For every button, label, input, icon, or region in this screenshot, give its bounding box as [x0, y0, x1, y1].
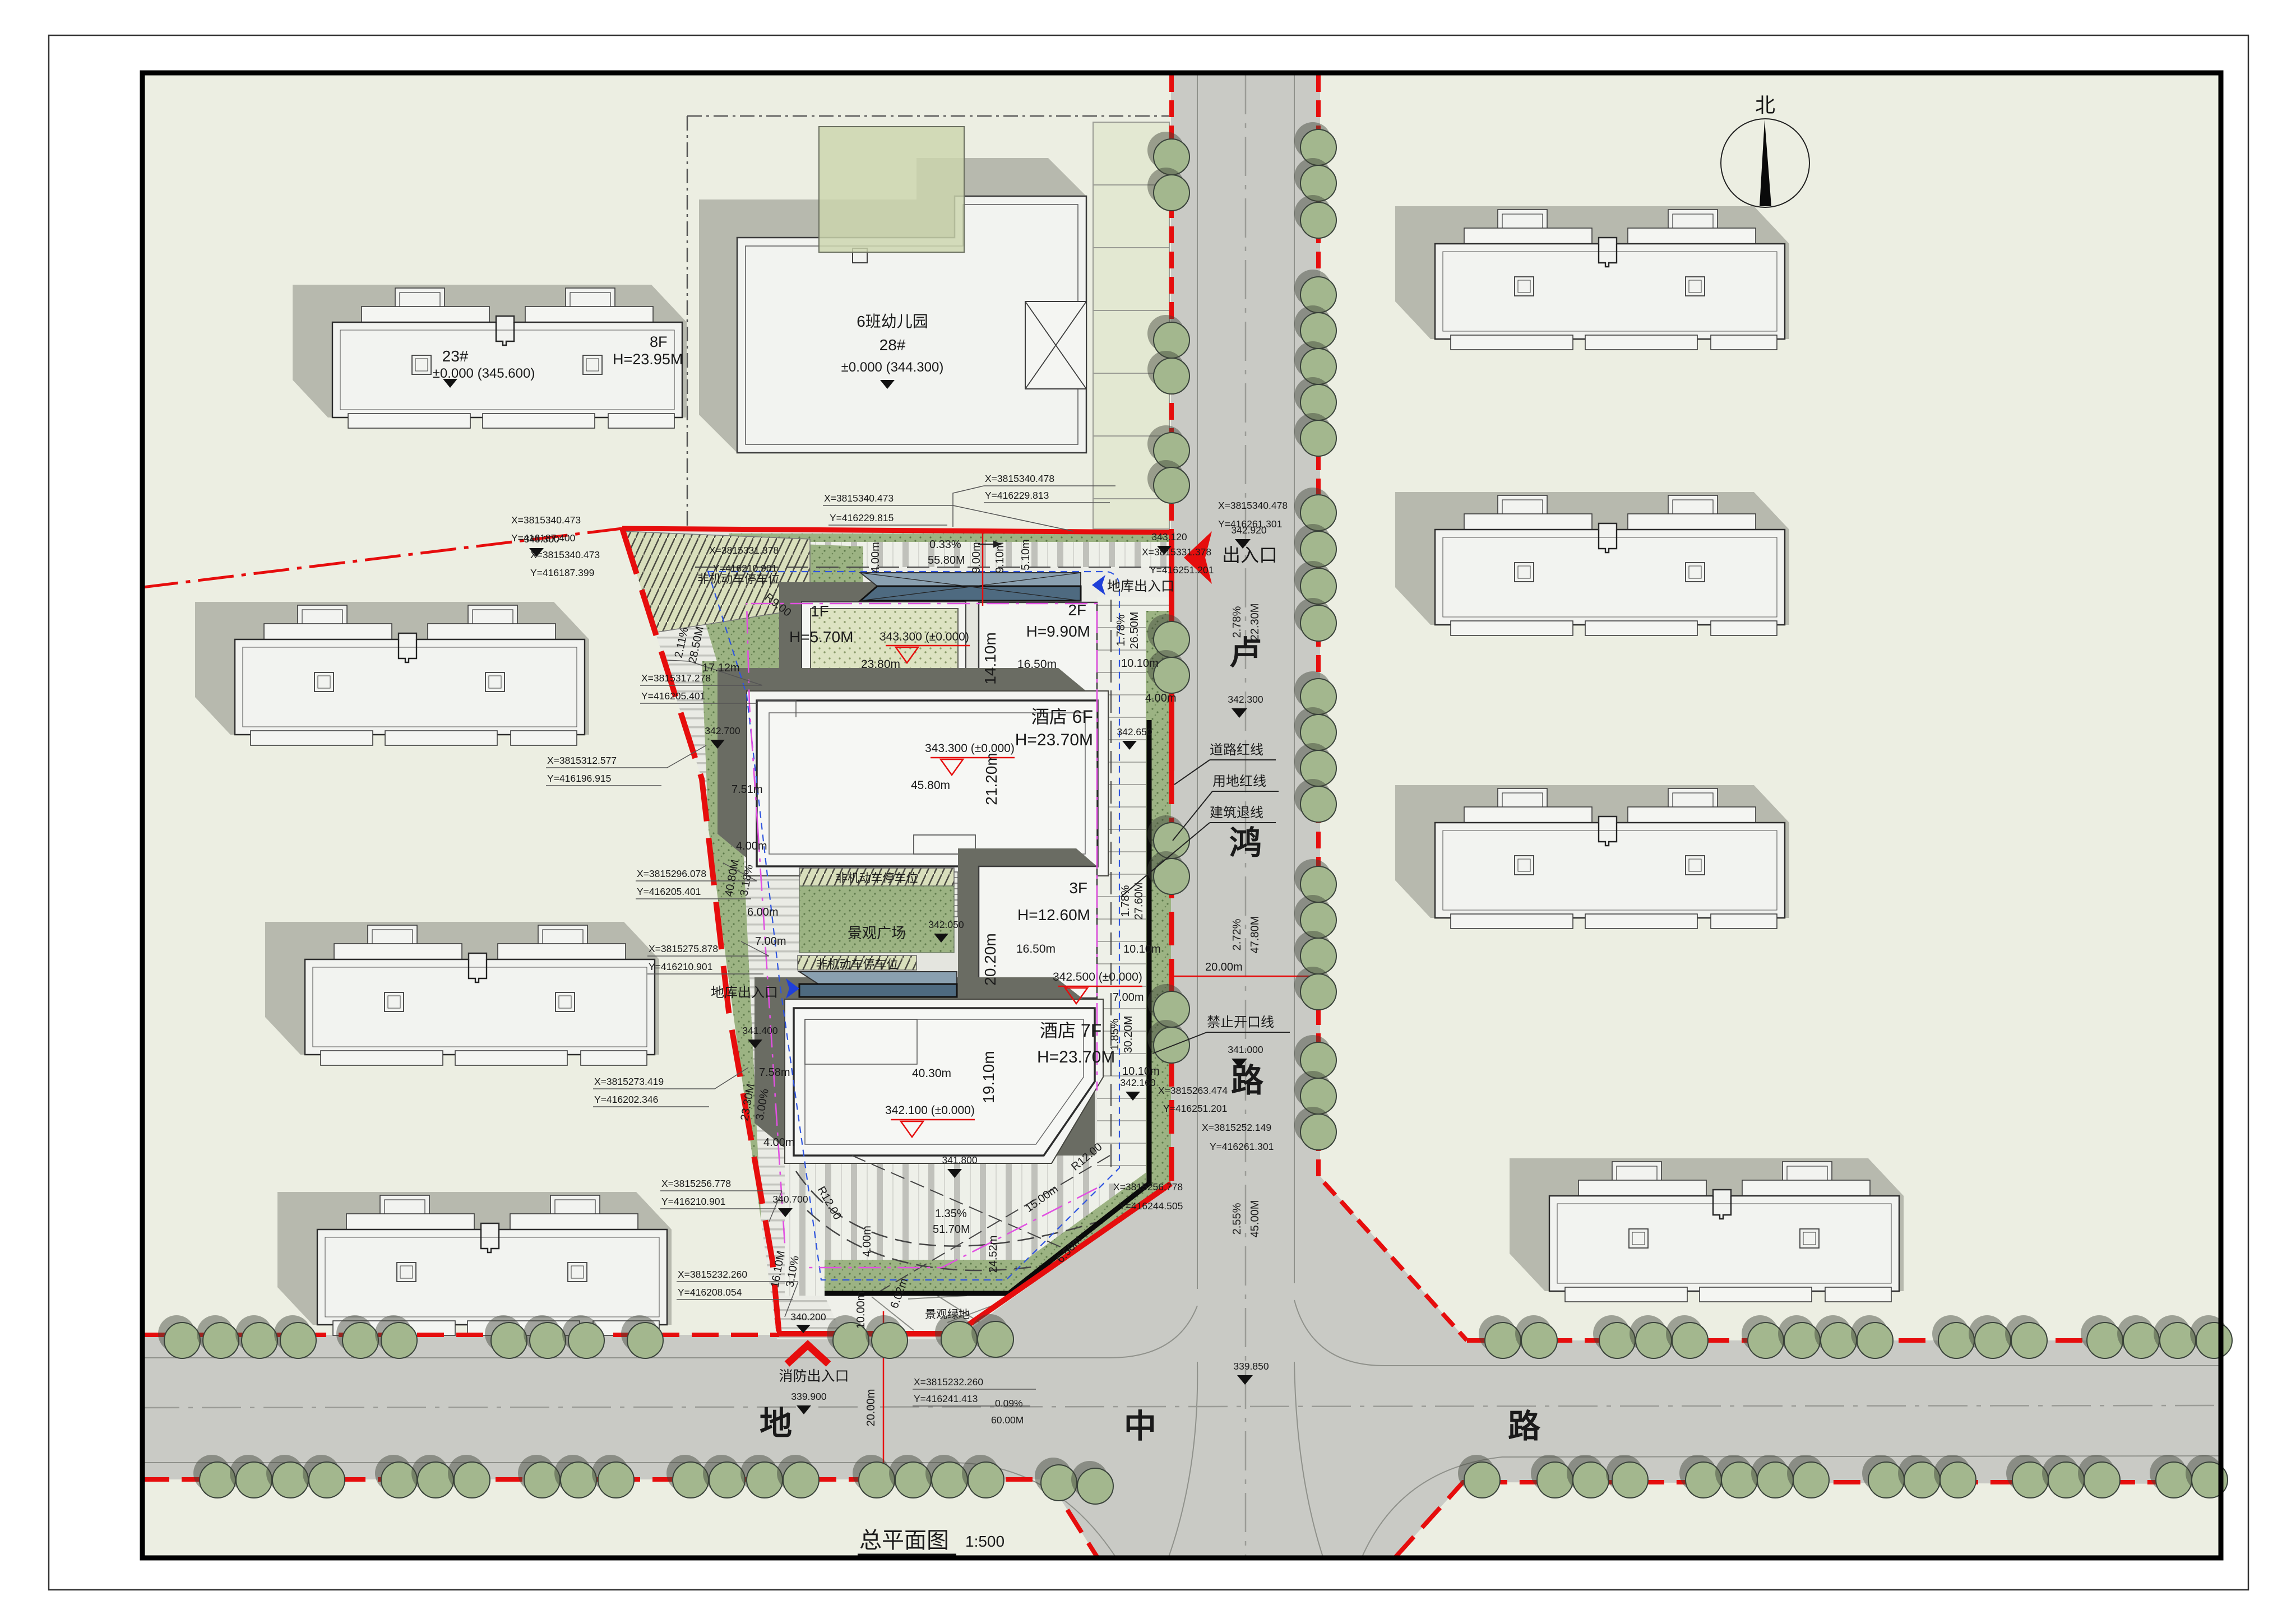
svg-text:用地红线: 用地红线 [1212, 774, 1266, 789]
svg-text:0.33%: 0.33% [929, 539, 961, 551]
svg-text:X=3815275.878: X=3815275.878 [649, 943, 718, 954]
svg-text:0.09%: 0.09% [995, 1398, 1023, 1409]
svg-text:341.000: 341.000 [1228, 1044, 1263, 1055]
svg-text:酒店 7F: 酒店 7F [1040, 1020, 1101, 1041]
svg-text:20.20m: 20.20m [982, 933, 999, 985]
svg-text:X=3815340.473: X=3815340.473 [824, 493, 894, 504]
svg-text:Y=416196.915: Y=416196.915 [547, 773, 611, 784]
svg-text:27.60M: 27.60M [1133, 883, 1145, 920]
svg-text:Y=416261.301: Y=416261.301 [1218, 518, 1282, 530]
svg-text:10.10m: 10.10m [1121, 657, 1159, 670]
svg-text:343.120: 343.120 [1151, 531, 1187, 542]
svg-text:H=12.60M: H=12.60M [1017, 906, 1090, 924]
svg-text:26.50M: 26.50M [1128, 612, 1141, 649]
svg-text:28#: 28# [879, 336, 906, 354]
svg-text:Y=416205.401: Y=416205.401 [637, 886, 701, 897]
svg-text:9.10m: 9.10m [994, 542, 1006, 573]
svg-text:非机动车停车位: 非机动车停车位 [697, 573, 780, 586]
svg-text:禁止开口线: 禁止开口线 [1207, 1015, 1274, 1030]
svg-text:6.00m: 6.00m [747, 906, 779, 918]
svg-text:1.78%: 1.78% [1115, 614, 1127, 646]
svg-text:8F: 8F [650, 333, 668, 350]
svg-text:342.160: 342.160 [1120, 1077, 1156, 1088]
svg-text:建筑退线: 建筑退线 [1210, 805, 1263, 820]
svg-text:Y=416208.054: Y=416208.054 [678, 1287, 742, 1298]
svg-text:4.00m: 4.00m [1145, 692, 1177, 704]
svg-text:地: 地 [760, 1405, 792, 1442]
svg-text:10.10m: 10.10m [1122, 1065, 1160, 1078]
svg-text:9.00m: 9.00m [970, 542, 983, 573]
svg-text:路: 路 [1231, 1062, 1264, 1099]
svg-text:7.00m: 7.00m [1113, 991, 1144, 1004]
svg-text:339.850: 339.850 [1233, 1361, 1269, 1372]
svg-text:2F: 2F [1068, 601, 1086, 619]
svg-text:342.500 (±0.000): 342.500 (±0.000) [1053, 971, 1142, 983]
svg-text:1F: 1F [811, 602, 829, 620]
svg-text:Y=416210.901: Y=416210.901 [661, 1196, 725, 1207]
svg-text:X=3815273.419: X=3815273.419 [594, 1076, 664, 1087]
svg-text:4.00m: 4.00m [763, 1136, 795, 1149]
svg-text:Y=416229.813: Y=416229.813 [985, 490, 1049, 501]
svg-text:X=3815296.078: X=3815296.078 [637, 868, 706, 879]
svg-text:7.51m: 7.51m [732, 783, 763, 796]
svg-text:342.700: 342.700 [705, 725, 740, 736]
svg-text:非机动车停车位: 非机动车停车位 [836, 872, 918, 885]
svg-text:X=3815232.260: X=3815232.260 [914, 1376, 983, 1388]
svg-text:非机动车停车位: 非机动车停车位 [816, 958, 899, 971]
svg-text:酒店 6F: 酒店 6F [1031, 707, 1093, 727]
svg-text:7.00m: 7.00m [755, 935, 786, 948]
svg-text:H=9.90M: H=9.90M [1026, 623, 1090, 640]
svg-text:17.12m: 17.12m [702, 662, 740, 674]
svg-text:343.300 (±0.000): 343.300 (±0.000) [879, 630, 969, 643]
svg-text:2.55%: 2.55% [1231, 1203, 1243, 1235]
svg-text:19.10m: 19.10m [980, 1051, 997, 1103]
svg-text:24.52m: 24.52m [987, 1236, 999, 1273]
svg-text:X=3815317.278: X=3815317.278 [641, 672, 711, 684]
svg-text:X=3815312.577: X=3815312.577 [547, 755, 617, 766]
svg-text:20.00m: 20.00m [865, 1389, 877, 1427]
svg-text:16.50m: 16.50m [1016, 943, 1056, 955]
svg-text:Y=416202.346: Y=416202.346 [594, 1094, 658, 1105]
svg-text:6班幼儿园: 6班幼儿园 [857, 313, 928, 330]
svg-text:X=3815340.478: X=3815340.478 [985, 473, 1054, 484]
svg-text:Y=416210.901: Y=416210.901 [713, 563, 777, 574]
svg-text:X=3815252.149: X=3815252.149 [1202, 1122, 1271, 1133]
svg-text:51.70M: 51.70M [933, 1223, 970, 1236]
svg-text:X=3815232.260: X=3815232.260 [678, 1269, 747, 1280]
svg-text:X=3815256.778: X=3815256.778 [1113, 1181, 1183, 1193]
svg-text:Y=416210.901: Y=416210.901 [649, 961, 712, 972]
svg-text:X=3815331.378: X=3815331.378 [709, 545, 779, 556]
svg-text:5.10m: 5.10m [1020, 539, 1032, 570]
svg-text:60.00M: 60.00M [991, 1414, 1024, 1426]
svg-text:H=23.70M: H=23.70M [1015, 731, 1093, 749]
svg-text:Y=416244.505: Y=416244.505 [1119, 1200, 1183, 1212]
svg-text:14.10m: 14.10m [982, 632, 999, 684]
svg-text:地库出入口: 地库出入口 [711, 985, 778, 1000]
svg-text:X=3815331.378: X=3815331.378 [1142, 546, 1211, 558]
svg-text:45.80m: 45.80m [911, 779, 950, 792]
svg-text:出入口: 出入口 [1222, 545, 1277, 565]
svg-text:H=5.70M: H=5.70M [789, 628, 853, 646]
svg-text:3F: 3F [1069, 879, 1087, 897]
svg-text:±0.000 (345.600): ±0.000 (345.600) [433, 366, 535, 381]
svg-text:鸿: 鸿 [1229, 825, 1262, 861]
svg-text:20.00m: 20.00m [1205, 961, 1243, 973]
svg-text:道路红线: 道路红线 [1210, 743, 1263, 758]
svg-text:30.20M: 30.20M [1122, 1016, 1135, 1054]
svg-text:Y=416187.400: Y=416187.400 [511, 532, 576, 544]
svg-text:343.300 (±0.000): 343.300 (±0.000) [925, 742, 1015, 755]
svg-text:339.900: 339.900 [791, 1391, 827, 1402]
svg-text:Y=416229.815: Y=416229.815 [830, 512, 894, 523]
svg-text:4.00m: 4.00m [861, 1226, 873, 1257]
svg-text:Y=416261.301: Y=416261.301 [1210, 1141, 1274, 1152]
svg-text:7.58m: 7.58m [759, 1066, 790, 1079]
svg-text:2.72%: 2.72% [1231, 918, 1243, 950]
svg-text:341.800: 341.800 [942, 1154, 978, 1166]
svg-text:45.00M: 45.00M [1249, 1200, 1261, 1238]
svg-text:10.00m: 10.00m [855, 1292, 867, 1329]
svg-text:Y=416241.413: Y=416241.413 [914, 1393, 978, 1404]
svg-text:341.400: 341.400 [742, 1025, 778, 1036]
svg-text:X=3815340.478: X=3815340.478 [1218, 500, 1288, 511]
svg-text:342.650: 342.650 [1117, 726, 1152, 737]
svg-text:4.00m: 4.00m [869, 542, 882, 573]
svg-text:路: 路 [1508, 1408, 1541, 1445]
svg-text:4.00m: 4.00m [736, 840, 767, 852]
svg-text:340.700: 340.700 [772, 1194, 808, 1205]
svg-text:Y=416251.201: Y=416251.201 [1150, 564, 1214, 576]
svg-text:北: 北 [1755, 94, 1775, 117]
svg-text:10.10m: 10.10m [1123, 943, 1161, 955]
svg-text:总平面图: 总平面图 [859, 1528, 949, 1553]
svg-text:16.50m: 16.50m [1017, 658, 1057, 671]
svg-text:23.80m: 23.80m [861, 658, 900, 671]
svg-text:55.80M: 55.80M [928, 554, 965, 567]
svg-text:40.30m: 40.30m [912, 1067, 951, 1080]
svg-text:X=3815340.473: X=3815340.473 [530, 549, 600, 560]
svg-text:21.20m: 21.20m [983, 753, 1000, 805]
svg-text:H=23.70M: H=23.70M [1037, 1048, 1115, 1066]
svg-text:消防出入口: 消防出入口 [779, 1368, 849, 1384]
svg-text:1.85%: 1.85% [1109, 1018, 1121, 1050]
svg-text:2.78%: 2.78% [1231, 606, 1243, 638]
svg-text:X=3815256.778: X=3815256.778 [661, 1178, 731, 1189]
svg-text:342.100 (±0.000): 342.100 (±0.000) [885, 1104, 975, 1117]
svg-text:340.200: 340.200 [790, 1311, 826, 1323]
svg-text:景观广场: 景观广场 [848, 925, 906, 941]
svg-text:23#: 23# [442, 347, 469, 365]
svg-text:景观绿地: 景观绿地 [925, 1308, 970, 1321]
svg-text:47.80M: 47.80M [1249, 916, 1261, 954]
svg-text:±0.000 (344.300): ±0.000 (344.300) [841, 360, 944, 375]
svg-text:地库出入口: 地库出入口 [1107, 579, 1174, 594]
svg-text:X=3815340.473: X=3815340.473 [511, 514, 581, 526]
svg-text:中: 中 [1124, 1408, 1156, 1445]
svg-text:Y=416251.201: Y=416251.201 [1163, 1103, 1227, 1114]
svg-text:1:500: 1:500 [965, 1533, 1004, 1550]
svg-text:342.050: 342.050 [928, 919, 964, 930]
svg-text:342.300: 342.300 [1228, 694, 1263, 705]
svg-text:X=3815263.474: X=3815263.474 [1158, 1085, 1228, 1096]
svg-text:Y=416205.401: Y=416205.401 [641, 690, 705, 702]
svg-text:Y=416187.399: Y=416187.399 [530, 567, 594, 578]
svg-text:1.35%: 1.35% [935, 1208, 967, 1220]
svg-text:22.30M: 22.30M [1249, 604, 1261, 641]
svg-text:H=23.95M: H=23.95M [613, 351, 683, 368]
